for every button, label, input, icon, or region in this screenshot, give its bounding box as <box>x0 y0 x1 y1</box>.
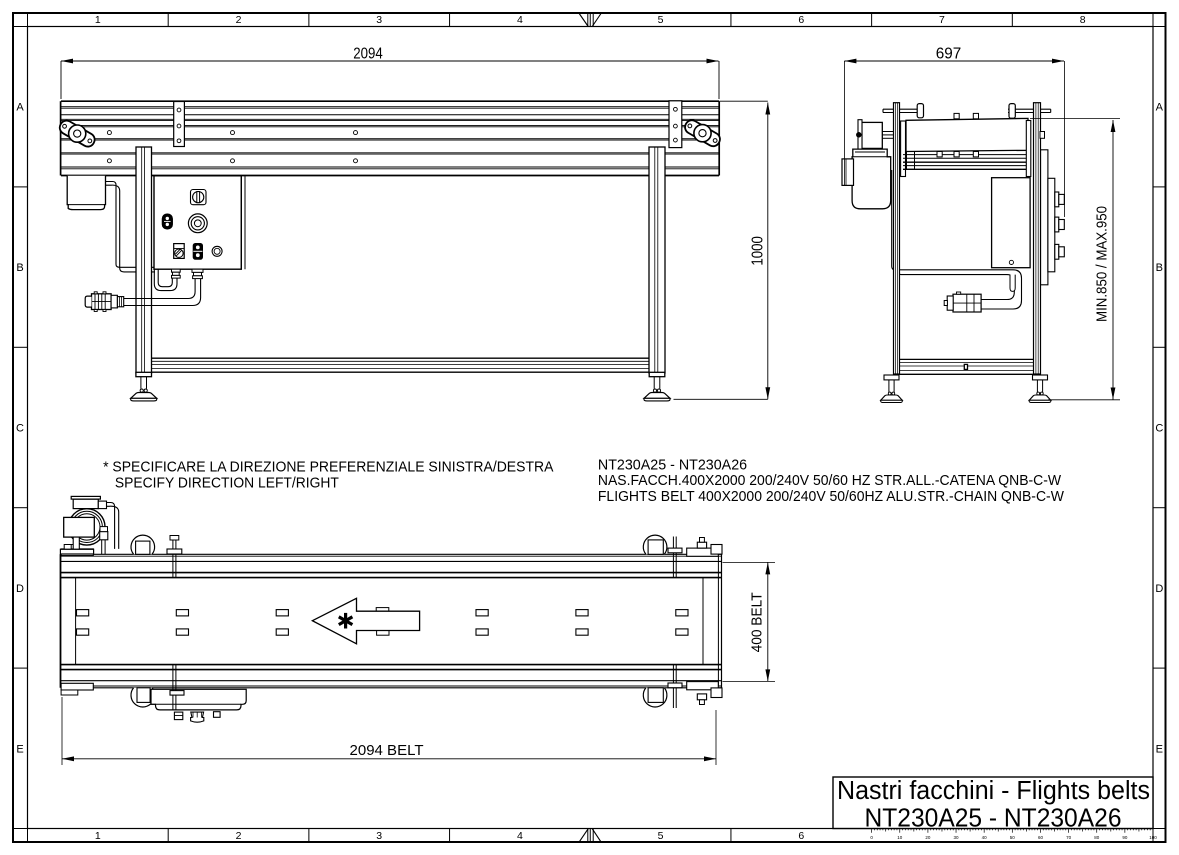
svg-text:40: 40 <box>982 835 988 840</box>
svg-text:2094: 2094 <box>353 45 383 62</box>
svg-text:3: 3 <box>376 830 382 842</box>
svg-text:MIN.850 / MAX.950: MIN.850 / MAX.950 <box>1094 206 1111 322</box>
svg-text:D: D <box>1155 583 1163 595</box>
svg-text:FLIGHTS BELT 400X2000 200/240V: FLIGHTS BELT 400X2000 200/240V 50/60HZ A… <box>598 488 1065 505</box>
svg-text:60: 60 <box>1038 835 1044 840</box>
svg-text:4: 4 <box>517 830 523 842</box>
svg-text:SPECIFY DIRECTION LEFT/RIGHT: SPECIFY DIRECTION LEFT/RIGHT <box>115 475 339 492</box>
svg-text:6: 6 <box>798 830 804 842</box>
svg-text:B: B <box>16 262 23 274</box>
svg-text:1: 1 <box>95 830 101 842</box>
svg-text:Nastri facchini - Flights belt: Nastri facchini - Flights belts <box>837 777 1150 805</box>
svg-text:* SPECIFICARE LA DIREZIONE PRE: * SPECIFICARE LA DIREZIONE PREFERENZIALE… <box>103 458 553 475</box>
svg-text:10: 10 <box>897 835 903 840</box>
svg-text:A: A <box>16 102 24 114</box>
svg-text:1: 1 <box>95 14 101 26</box>
svg-text:2: 2 <box>236 14 242 26</box>
svg-text:90: 90 <box>1122 835 1128 840</box>
svg-text:400 BELT: 400 BELT <box>749 592 766 652</box>
svg-text:70: 70 <box>1066 835 1072 840</box>
svg-text:8: 8 <box>1080 14 1086 26</box>
svg-text:NAS.FACCH.400X2000 200/240V 50: NAS.FACCH.400X2000 200/240V 50/60 HZ STR… <box>598 472 1062 489</box>
svg-text:E: E <box>1156 743 1163 755</box>
svg-text:NT230A25 - NT230A26: NT230A25 - NT230A26 <box>865 804 1122 832</box>
svg-text:697: 697 <box>936 45 962 62</box>
svg-text:30: 30 <box>954 835 960 840</box>
svg-text:7: 7 <box>939 14 945 26</box>
svg-text:4: 4 <box>517 14 523 26</box>
svg-text:D: D <box>16 583 24 595</box>
svg-text:3: 3 <box>376 14 382 26</box>
svg-text:50: 50 <box>1010 835 1016 840</box>
svg-text:2: 2 <box>236 830 242 842</box>
svg-text:5: 5 <box>658 830 664 842</box>
svg-text:80: 80 <box>1094 835 1100 840</box>
svg-text:B: B <box>1156 262 1163 274</box>
svg-text:100: 100 <box>1149 835 1157 840</box>
svg-text:C: C <box>16 423 24 435</box>
svg-text:20: 20 <box>925 835 931 840</box>
svg-text:5: 5 <box>658 14 664 26</box>
svg-text:2094 BELT: 2094 BELT <box>350 742 424 759</box>
svg-text:1000: 1000 <box>750 236 767 266</box>
svg-text:A: A <box>1156 102 1164 114</box>
svg-text:C: C <box>1155 423 1163 435</box>
svg-text:E: E <box>16 743 23 755</box>
svg-text:6: 6 <box>798 14 804 26</box>
